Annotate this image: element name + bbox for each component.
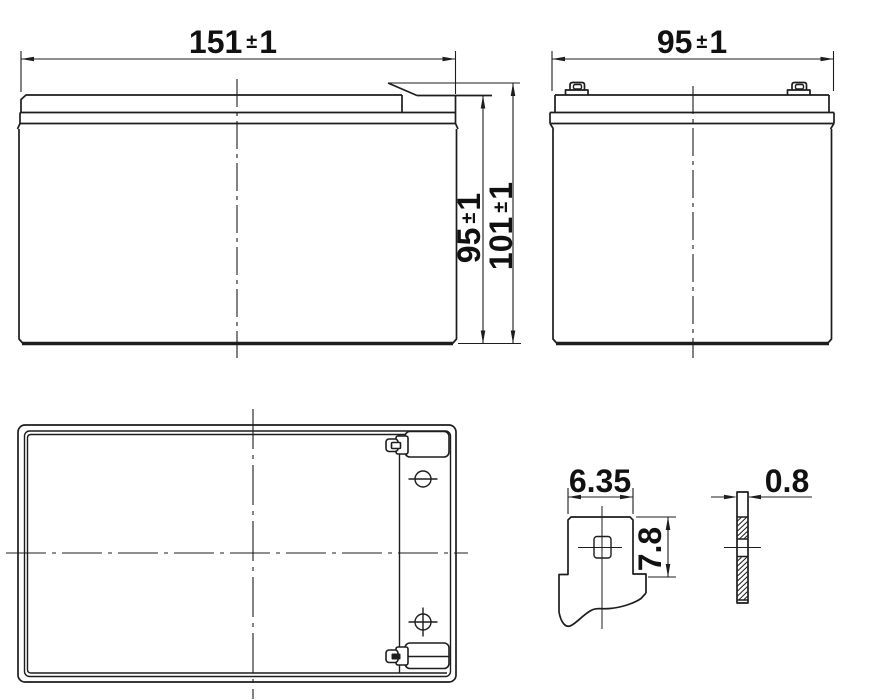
section-hatching — [738, 517, 748, 600]
top-lid-inner-edge2 — [28, 435, 448, 674]
faston-tab-hole — [392, 654, 401, 660]
dim-terminal-tab-height: 7.8 — [632, 517, 676, 577]
plus-lines — [409, 608, 438, 637]
dim-terminal-thickness: 0.8 — [711, 463, 812, 499]
arrow-left — [21, 57, 34, 62]
side-body — [553, 129, 832, 344]
arrow-down — [511, 331, 516, 344]
terminal-side-detail: 0.8 — [711, 463, 812, 603]
top-view — [6, 409, 468, 699]
front-lid-bands — [20, 113, 456, 124]
negative-terminal-icon — [409, 471, 438, 487]
arrow-down — [481, 331, 486, 344]
dim-terminal-width: 6.35 — [568, 463, 633, 514]
arrow-up — [511, 83, 516, 96]
front-view — [18, 79, 493, 358]
top-terminal-positive — [386, 643, 449, 669]
side-lid-band-edges — [550, 113, 834, 124]
side-terminal-left — [566, 83, 589, 96]
dim-label-terminal-tab-height: 7.8 — [632, 527, 668, 571]
battery-dimension-drawing: 151±1 95±1 95±1 — [0, 0, 870, 700]
terminal-tab-slot — [574, 85, 582, 90]
top-lid-inner-edge — [25, 431, 451, 677]
faston-tab-hole — [392, 443, 401, 449]
positive-terminal-icon — [409, 608, 438, 637]
side-lid-bands — [550, 113, 834, 124]
front-body — [19, 129, 457, 344]
dim-label-case-height: 95±1 — [451, 193, 487, 263]
arrow-left — [748, 495, 761, 500]
terminal-housing — [405, 643, 449, 669]
dim-label-front-width: 151±1 — [189, 24, 277, 60]
front-lid-top — [21, 95, 402, 113]
side-lid-top — [555, 95, 829, 113]
dim-label-terminal-width: 6.35 — [569, 463, 631, 499]
terminal-front-detail: 6.35 7.8 — [559, 463, 676, 629]
dim-label-overall-height: 101±1 — [483, 182, 519, 270]
arrow-up — [481, 96, 486, 109]
front-lid-band-edges — [20, 96, 456, 124]
terminal-housing — [405, 432, 449, 458]
side-view — [550, 83, 834, 359]
arrow-right — [724, 495, 737, 500]
terminal-tab-slot — [796, 85, 804, 90]
arrow-left — [552, 57, 565, 62]
dim-label-terminal-thickness: 0.8 — [765, 463, 809, 499]
top-terminal-negative — [386, 432, 449, 458]
side-terminal-right — [788, 83, 811, 96]
front-terminal-flag — [388, 83, 492, 96]
arrow-right — [821, 57, 834, 62]
dim-overall-height: 101±1 — [388, 83, 520, 344]
dim-side-width: 95±1 — [552, 24, 834, 91]
arrow-right — [443, 57, 456, 62]
dim-label-side-width: 95±1 — [657, 24, 727, 60]
